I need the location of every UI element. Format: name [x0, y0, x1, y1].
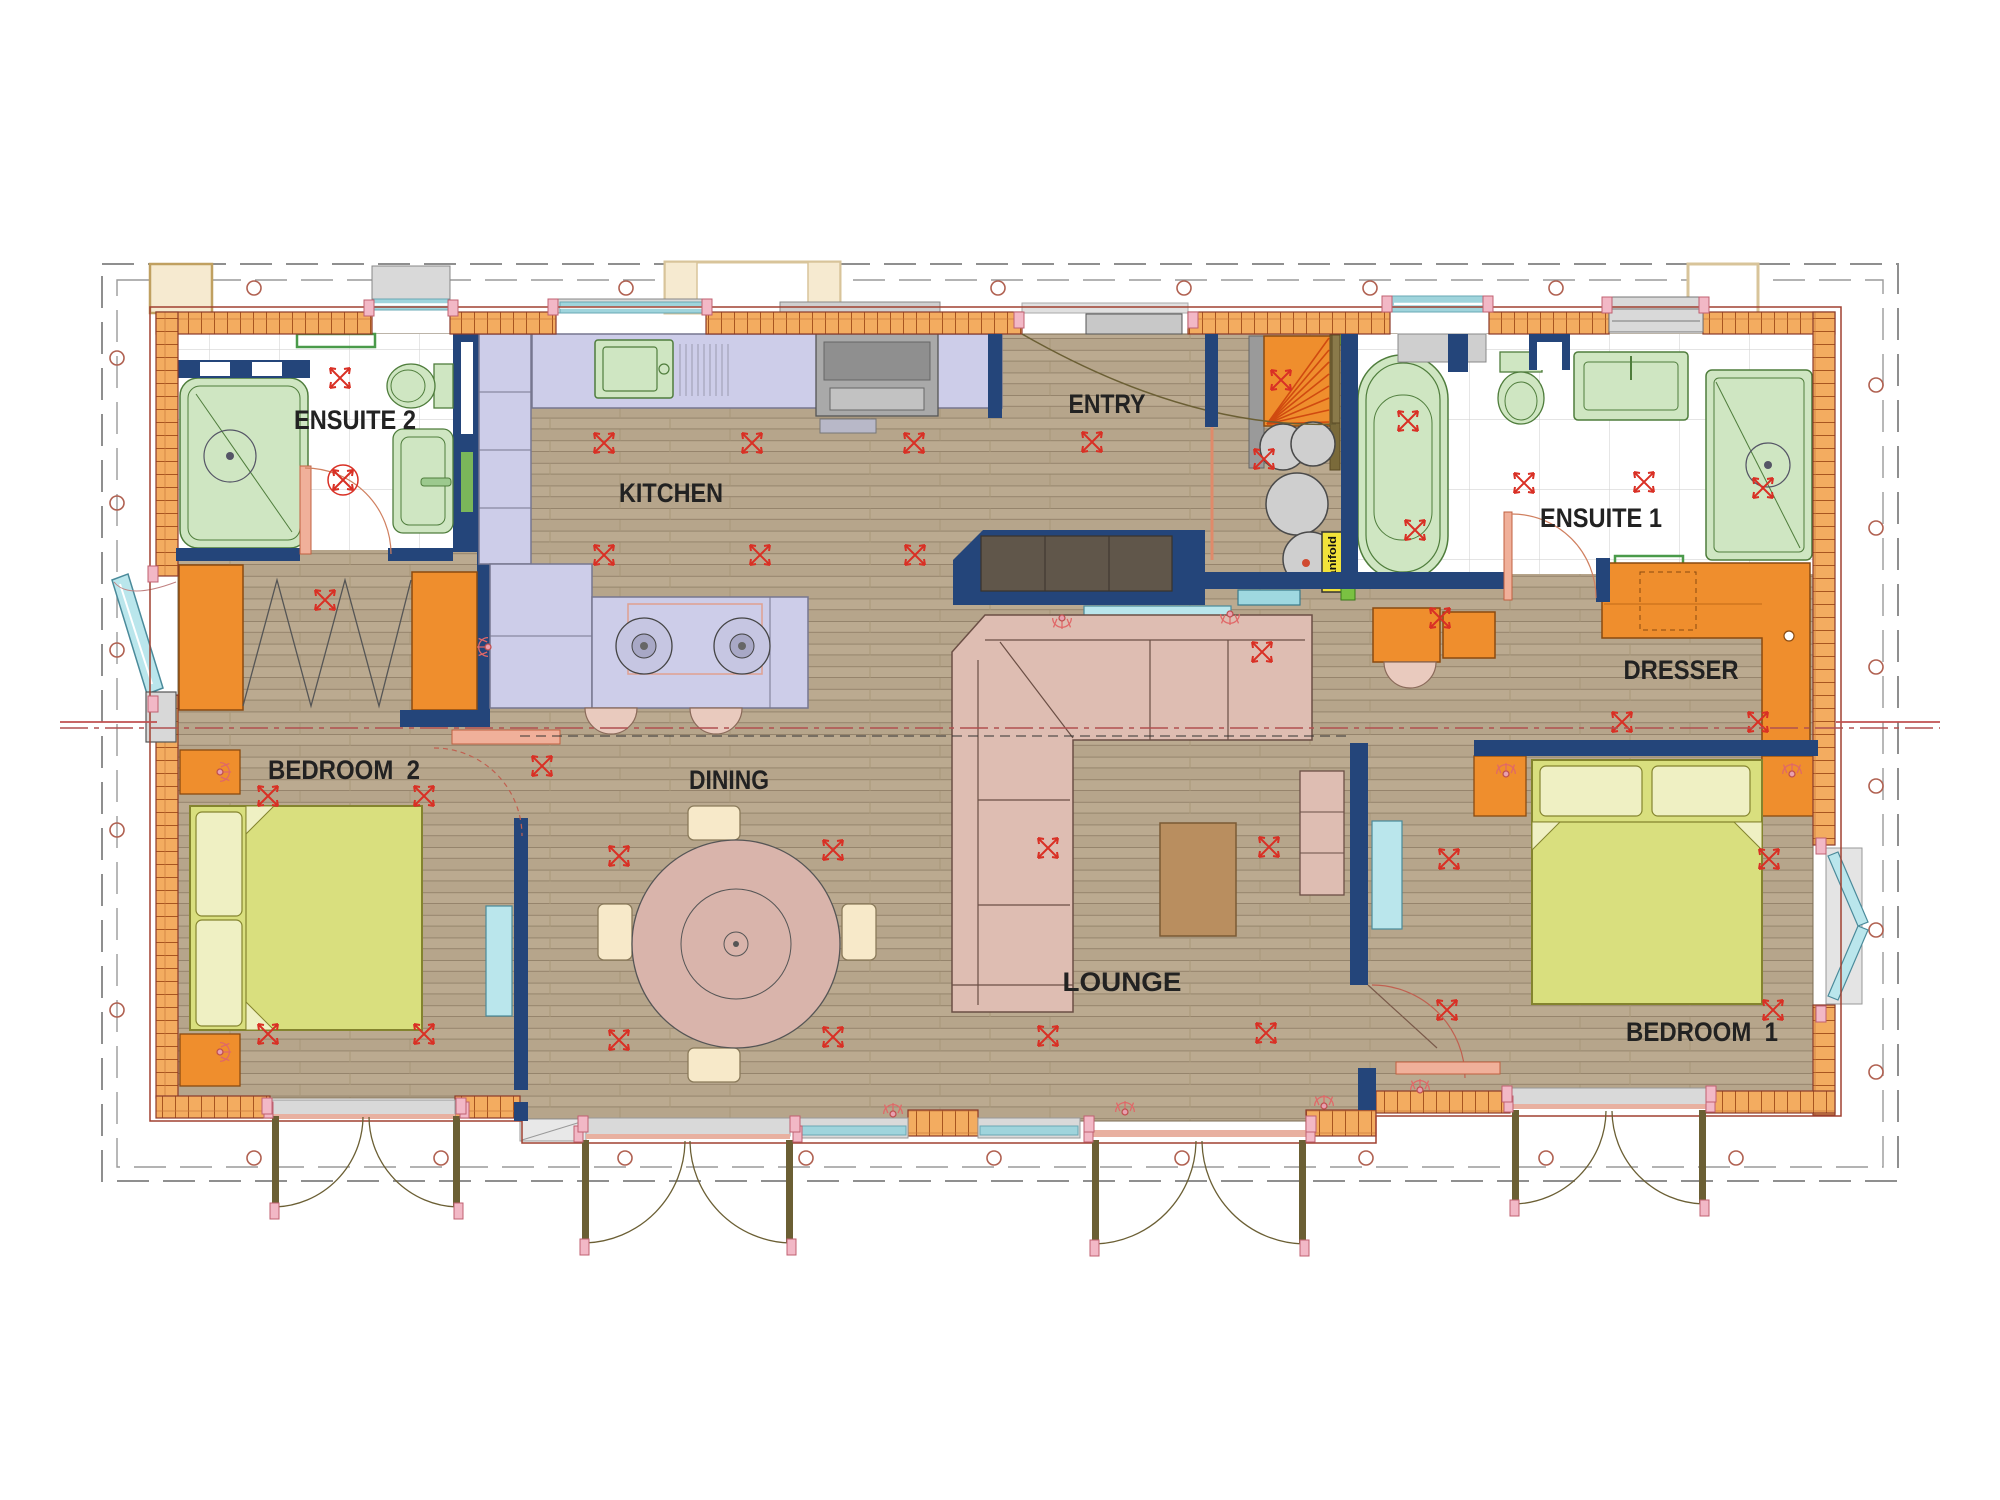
svg-text:LOUNGE: LOUNGE — [1063, 967, 1182, 997]
svg-text:KITCHEN: KITCHEN — [619, 478, 723, 508]
svg-text:DRESSER: DRESSER — [1624, 655, 1739, 685]
svg-text:ENTRY: ENTRY — [1069, 389, 1146, 419]
svg-text:ENSUITE 1: ENSUITE 1 — [1540, 503, 1662, 533]
svg-text:DINING: DINING — [689, 765, 769, 795]
svg-text:BEDROOM 1: BEDROOM 1 — [1626, 1017, 1778, 1047]
svg-text:ENSUITE 2: ENSUITE 2 — [294, 405, 416, 435]
svg-text:BEDROOM 2: BEDROOM 2 — [268, 755, 420, 785]
